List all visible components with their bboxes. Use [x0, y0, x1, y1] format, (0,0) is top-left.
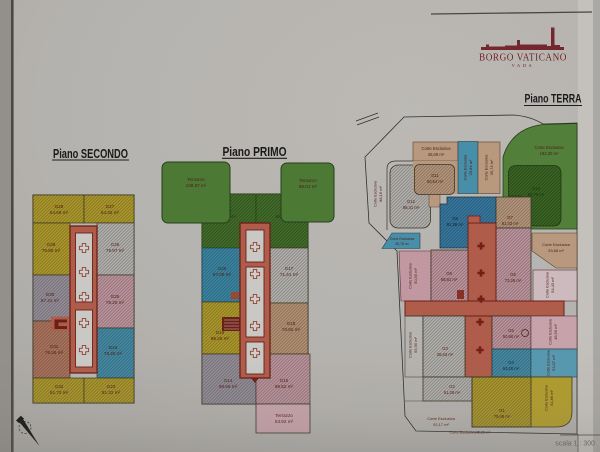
svg-text:71.41 m²: 71.41 m² — [280, 272, 299, 277]
svg-text:75.97 m²: 75.97 m² — [106, 248, 125, 253]
svg-text:Piano PRIMO: Piano PRIMO — [223, 144, 287, 159]
svg-text:50,90 m²: 50,90 m² — [503, 334, 520, 339]
svg-text:108.67 m²: 108.67 m² — [186, 183, 207, 188]
svg-text:67.06 m²: 67.06 m² — [213, 272, 232, 277]
svg-text:50,54 m²: 50,54 m² — [427, 179, 444, 184]
svg-text:BORGO VATICANO: BORGO VATICANO — [479, 53, 567, 64]
svg-text:75.20 m²: 75.20 m² — [106, 300, 125, 305]
svg-text:G8: G8 — [452, 216, 458, 221]
svg-text:G24: G24 — [109, 345, 118, 350]
svg-text:G6: G6 — [510, 272, 516, 277]
svg-text:50,55 m²: 50,55 m² — [413, 267, 418, 283]
svg-text:88,16 m²: 88,16 m² — [378, 185, 383, 201]
svg-text:scala 1 : 300: scala 1 : 300 — [555, 441, 595, 448]
svg-text:G12: G12 — [407, 199, 416, 204]
svg-text:75.85 m²: 75.85 m² — [42, 248, 61, 253]
svg-text:G9: G9 — [446, 271, 452, 276]
svg-text:54,43 m²: 54,43 m² — [550, 276, 555, 292]
svg-text:G5: G5 — [508, 328, 514, 333]
svg-text:Corte Esclusiva: Corte Esclusiva — [409, 262, 413, 289]
svg-text:66,41 m²: 66,41 m² — [403, 205, 420, 210]
svg-text:G11: G11 — [431, 173, 439, 178]
svg-text:Corte Esclusiva: Corte Esclusiva — [390, 237, 414, 241]
svg-text:39,74 m²: 39,74 m² — [489, 159, 494, 175]
svg-text:Corte Esclusiva: Corte Esclusiva — [485, 154, 489, 181]
svg-text:193,30 m²: 193,30 m² — [540, 151, 559, 156]
svg-text:G17: G17 — [285, 266, 294, 271]
svg-text:95.25 m²: 95.25 m² — [211, 336, 230, 341]
svg-text:68,91 m²: 68,91 m² — [441, 277, 458, 282]
svg-text:G7: G7 — [507, 215, 513, 220]
svg-text:Corte Esclusiva: Corte Esclusiva — [464, 154, 468, 181]
svg-text:G30: G30 — [46, 292, 55, 297]
svg-text:G18: G18 — [287, 321, 296, 326]
svg-text:Corte Esclusiva: Corte Esclusiva — [374, 180, 378, 207]
svg-text:28,78 m²: 28,78 m² — [395, 242, 410, 246]
svg-text:G10: G10 — [532, 186, 541, 191]
svg-text:G27: G27 — [106, 204, 115, 209]
svg-text:Corte Esclusiva: Corte Esclusiva — [534, 145, 564, 150]
svg-text:Corte Esclusiva: Corte Esclusiva — [546, 271, 550, 298]
svg-text:91,38 m²: 91,38 m² — [447, 222, 464, 227]
svg-text:G20: G20 — [218, 266, 227, 271]
svg-text:20,84 m²: 20,84 m² — [468, 159, 473, 175]
svg-text:73,25 m²: 73,25 m² — [505, 278, 522, 283]
svg-text:81,43 m²: 81,43 m² — [502, 221, 519, 226]
svg-text:Terrazzo: Terrazzo — [299, 178, 317, 183]
svg-text:54.32 m²: 54.32 m² — [101, 210, 120, 215]
svg-text:G26: G26 — [111, 242, 120, 247]
svg-text:G31: G31 — [50, 344, 59, 349]
svg-text:46,09 m²: 46,09 m² — [428, 152, 445, 157]
svg-text:G25: G25 — [111, 294, 120, 299]
svg-text:57.41 m²: 57.41 m² — [41, 298, 60, 303]
svg-text:50,74 m²: 50,74 m² — [528, 192, 545, 197]
svg-text:70.82 m²: 70.82 m² — [282, 327, 301, 332]
svg-text:Corte Esclusiva: Corte Esclusiva — [542, 242, 571, 247]
svg-text:48,56 m²: 48,56 m² — [553, 323, 558, 339]
svg-text:VADA: VADA — [512, 63, 535, 68]
svg-text:Corte Esclusiva: Corte Esclusiva — [549, 318, 553, 345]
svg-text:Piano SECONDO: Piano SECONDO — [53, 146, 128, 161]
svg-text:G29: G29 — [47, 242, 56, 247]
svg-text:85.01 m²: 85.01 m² — [299, 184, 318, 189]
svg-text:54.58 m²: 54.58 m² — [50, 210, 69, 215]
svg-text:Terrazzo: Terrazzo — [187, 177, 205, 182]
svg-text:G28: G28 — [55, 204, 64, 209]
svg-text:Corte Esclusiva: Corte Esclusiva — [421, 146, 451, 151]
svg-text:33,68 m²: 33,68 m² — [548, 248, 564, 253]
svg-text:Piano TERRA: Piano TERRA — [525, 92, 582, 106]
